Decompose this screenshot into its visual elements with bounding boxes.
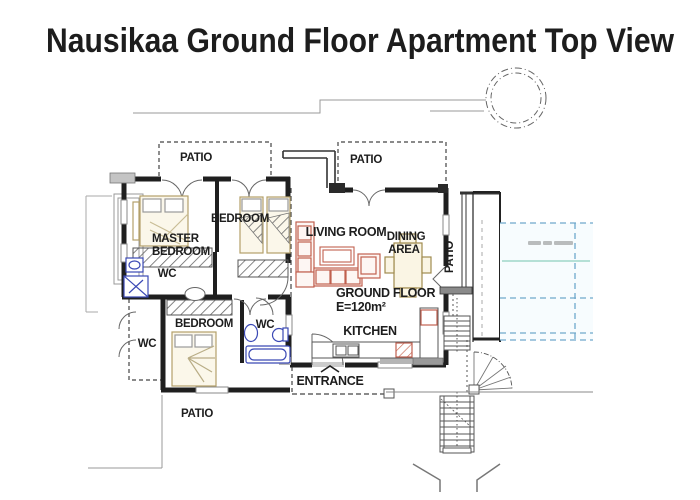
page-title: Nausikaa Ground Floor Apartment Top View (46, 22, 674, 60)
driveway-chevrons (413, 464, 500, 492)
floor-plan: Nausikaa Ground Floor Apartment Top View (0, 0, 700, 500)
coffee-table (320, 247, 354, 265)
bedroom-top-label: BEDROOM (211, 213, 269, 225)
dining-area-label-1: DINING (387, 231, 426, 243)
wc-master-label: WC (158, 268, 177, 280)
floor-plan-page: Nausikaa Ground Floor Apartment Top View (0, 0, 700, 500)
wc-annex-label: WC (138, 338, 157, 350)
bedroom-wardrobe (167, 300, 232, 315)
corner-cap (110, 173, 135, 183)
kitchen-label: KITCHEN (343, 324, 397, 338)
connector-wall (283, 151, 335, 188)
patio-right-label: PATIO (444, 241, 456, 273)
pool (500, 223, 593, 340)
master-bedroom-label-1: MASTER (152, 233, 200, 245)
wc-bath-label: WC (256, 319, 275, 331)
pillar (438, 184, 448, 193)
stairs-lower (440, 392, 474, 456)
stove (396, 343, 412, 357)
twin-beds (240, 197, 290, 253)
tree-circle-symbol (486, 68, 546, 128)
ground-floor-label-1: GROUND FLOOR (336, 286, 435, 300)
patio-top-left-label: PATIO (180, 152, 212, 164)
master-bedroom-label-2: BEDROOM (152, 246, 210, 258)
bedroom-bench (238, 260, 288, 277)
entrance-post (384, 389, 394, 398)
fridge (421, 310, 437, 325)
bed-bottom (172, 332, 216, 386)
pillar (329, 183, 345, 193)
toilet (185, 288, 205, 301)
bottom-patio-lines (88, 395, 162, 468)
fan-stair (469, 352, 512, 394)
patio-bottom-label: PATIO (181, 408, 213, 420)
terrace-structure (473, 192, 500, 342)
entrance-label: ENTRANCE (296, 374, 363, 388)
wall-stub (413, 358, 443, 365)
dining-area-label-2: AREA (388, 244, 419, 256)
illegible-annotation (528, 241, 573, 245)
patio-strip (460, 192, 500, 287)
living-room-label: LIVING ROOM (306, 225, 387, 239)
patio-top-right-label: PATIO (350, 154, 382, 166)
bedroom-bottom-label: BEDROOM (175, 318, 233, 330)
strip-wall-band (440, 287, 472, 294)
ground-floor-label-2: E=120m² (336, 300, 386, 314)
